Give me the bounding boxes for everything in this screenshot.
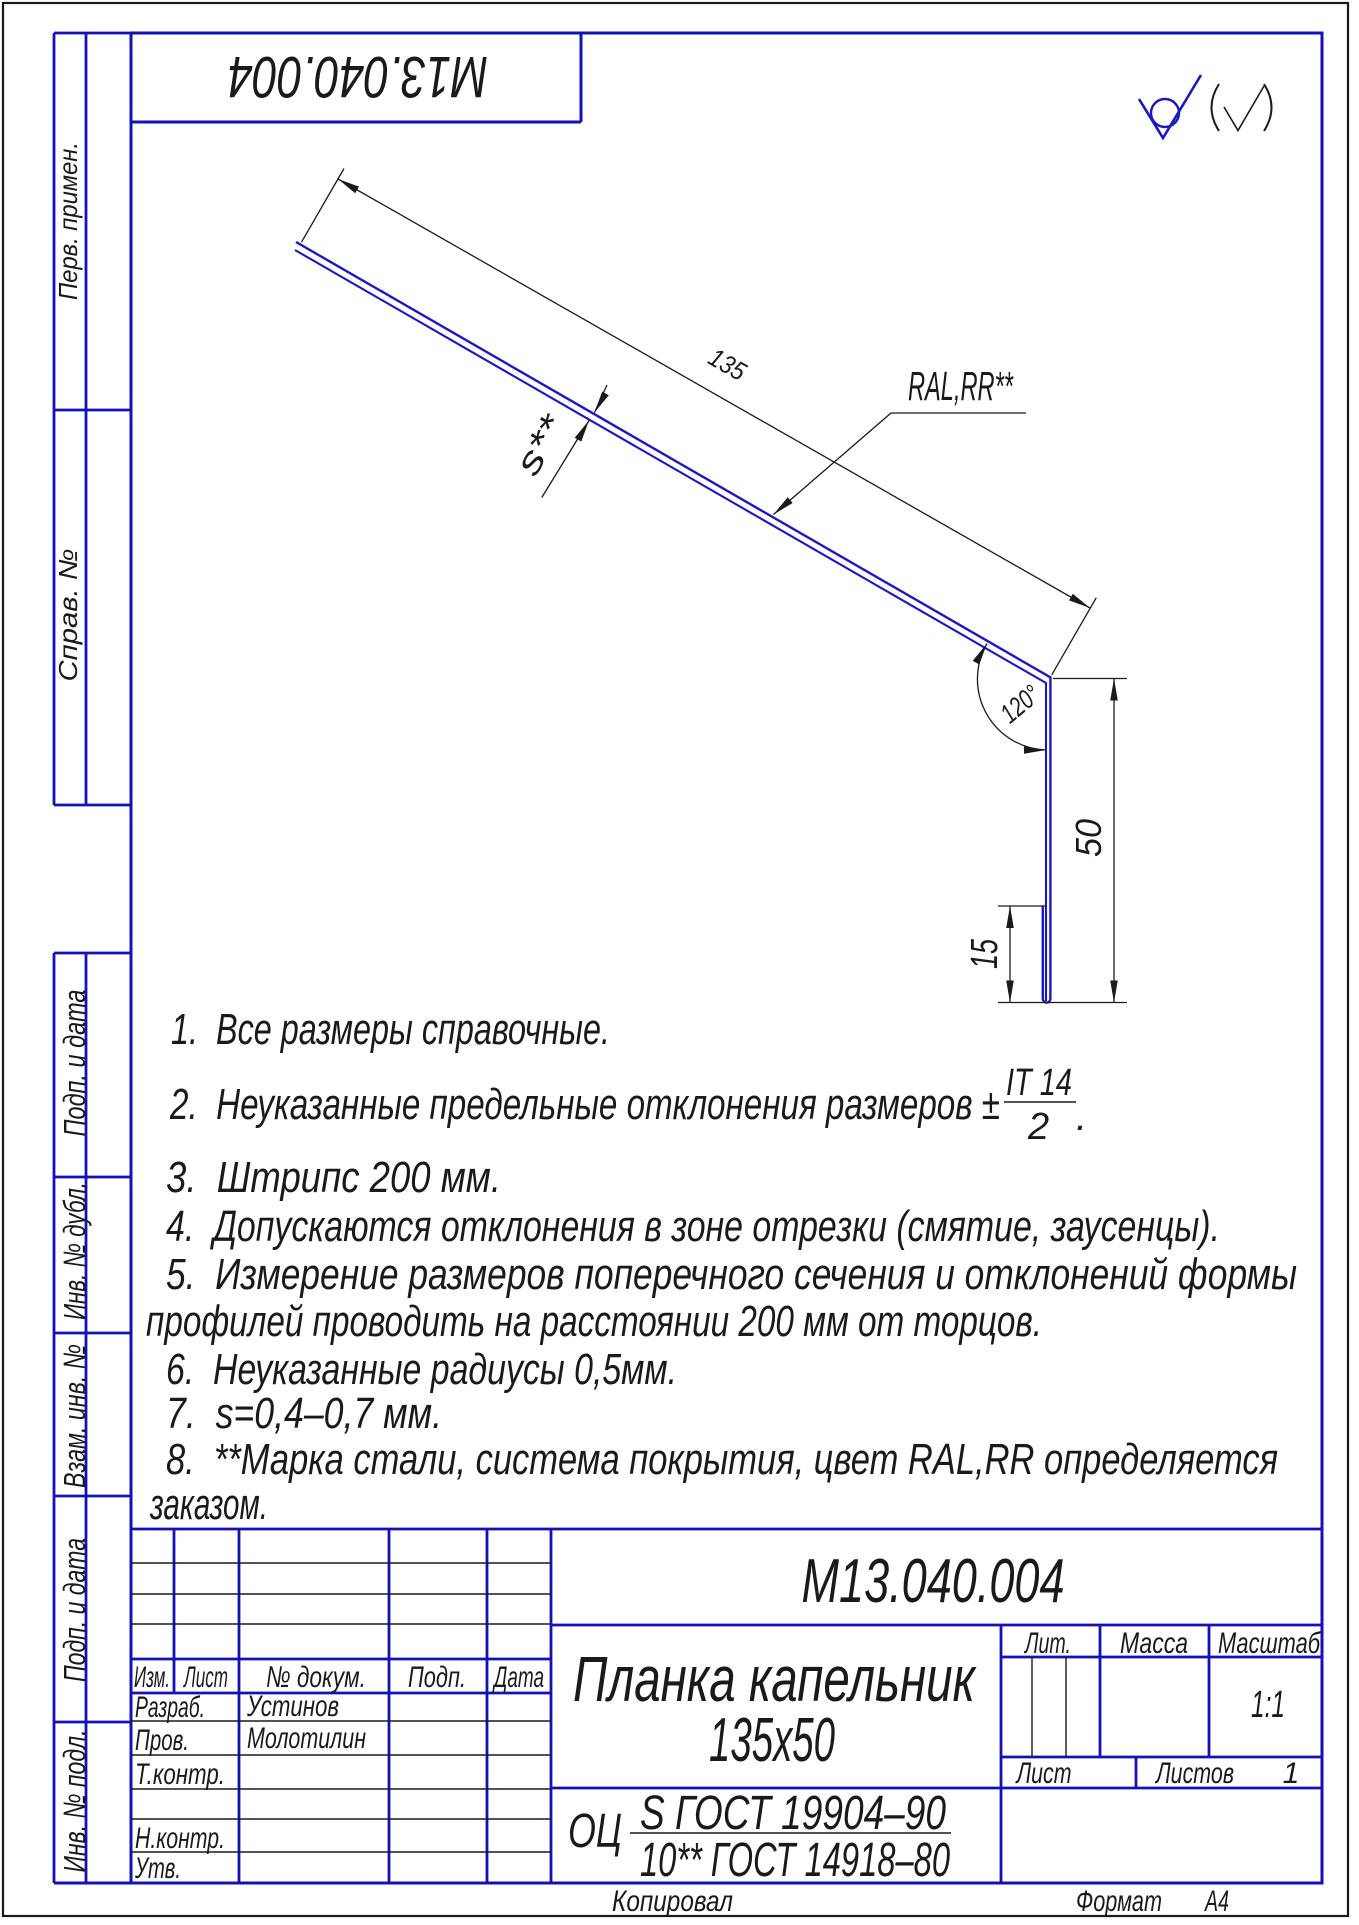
svg-text:Утв.: Утв. xyxy=(134,1852,181,1885)
svg-text:Справ. №: Справ. № xyxy=(53,549,83,682)
svg-text:Дата: Дата xyxy=(492,1661,544,1694)
svg-text:1. Все размеры справочные.: 1. Все размеры справочные. xyxy=(171,1005,610,1054)
svg-text:S ГОСТ 19904–90: S ГОСТ 19904–90 xyxy=(640,1787,946,1840)
svg-text:Лит.: Лит. xyxy=(1024,1627,1071,1660)
svg-text:10** ГОСТ 14918–80: 10** ГОСТ 14918–80 xyxy=(640,1834,950,1887)
svg-text:1: 1 xyxy=(1283,1757,1300,1790)
svg-text:50: 50 xyxy=(1068,819,1109,857)
svg-text:Н.контр.: Н.контр. xyxy=(135,1822,225,1855)
svg-text:135х50: 135х50 xyxy=(709,1706,835,1775)
svg-text:А4: А4 xyxy=(1204,1885,1229,1918)
svg-text:8. **Марка стали, система пок: 8. **Марка стали, система покрытия, цвет… xyxy=(166,1435,1278,1484)
svg-text:4. Допускаются отклонения в з: 4. Допускаются отклонения в зоне отрезки… xyxy=(166,1202,1220,1251)
svg-text:Лист: Лист xyxy=(183,1661,228,1694)
svg-text:Лист: Лист xyxy=(1015,1757,1071,1790)
svg-text:Инв. № подл.: Инв. № подл. xyxy=(57,1730,92,1873)
svg-text:3. Штрипс 200 мм.: 3. Штрипс 200 мм. xyxy=(166,1153,501,1202)
svg-text:Взам. инв. №: Взам. инв. № xyxy=(57,1344,92,1488)
svg-text:15: 15 xyxy=(964,938,1006,969)
svg-text:Устинов: Устинов xyxy=(246,1690,339,1723)
svg-text:7. s=0,4–0,7 мм.: 7. s=0,4–0,7 мм. xyxy=(166,1389,442,1438)
svg-text:Подп. и дата: Подп. и дата xyxy=(57,990,92,1137)
svg-text:Молотилин: Молотилин xyxy=(247,1722,366,1755)
svg-text:ОЦ: ОЦ xyxy=(568,1805,622,1858)
svg-text:.: . xyxy=(1076,1095,1087,1139)
svg-text:Разраб.: Разраб. xyxy=(135,1691,205,1724)
svg-text:Перв. примен.: Перв. примен. xyxy=(53,142,83,300)
svg-text:М13.040.004: М13.040.004 xyxy=(802,1547,1065,1616)
svg-text:Масштаб: Масштаб xyxy=(1218,1627,1321,1660)
svg-text:5. Измерение размеров попереч: 5. Измерение размеров поперечного сечени… xyxy=(166,1250,1297,1299)
svg-text:заказом.: заказом. xyxy=(149,1480,268,1529)
svg-text:IT 14: IT 14 xyxy=(1006,1062,1072,1104)
svg-text:Пров.: Пров. xyxy=(135,1724,189,1757)
svg-text:Масса: Масса xyxy=(1120,1627,1188,1660)
svg-text:RAL,RR**: RAL,RR** xyxy=(908,363,1014,409)
svg-text:Формат: Формат xyxy=(1076,1885,1162,1918)
svg-text:6. Неуказанные радиусы 0,5мм.: 6. Неуказанные радиусы 0,5мм. xyxy=(166,1345,677,1394)
svg-text:Т.контр.: Т.контр. xyxy=(135,1758,225,1791)
svg-text:2: 2 xyxy=(1027,1106,1049,1148)
svg-text:2. Неуказанные предельные отк: 2. Неуказанные предельные отклонения раз… xyxy=(169,1080,1000,1129)
svg-text:Планка капельник: Планка капельник xyxy=(573,1643,977,1715)
svg-text:Копировал: Копировал xyxy=(612,1885,733,1918)
svg-text:1:1: 1:1 xyxy=(1251,1684,1285,1726)
svg-text:Инв. № дубл.: Инв. № дубл. xyxy=(57,1182,92,1320)
svg-text:Подп.: Подп. xyxy=(408,1661,466,1694)
svg-text:Листов: Листов xyxy=(1155,1757,1234,1790)
svg-text:Подп. и дата: Подп. и дата xyxy=(57,1538,92,1682)
svg-text:М13.040.004: М13.040.004 xyxy=(228,44,488,109)
svg-text:профилей проводить на расстоян: профилей проводить на расстоянии 200 мм … xyxy=(146,1297,1042,1346)
svg-text:Изм.: Изм. xyxy=(134,1661,170,1694)
